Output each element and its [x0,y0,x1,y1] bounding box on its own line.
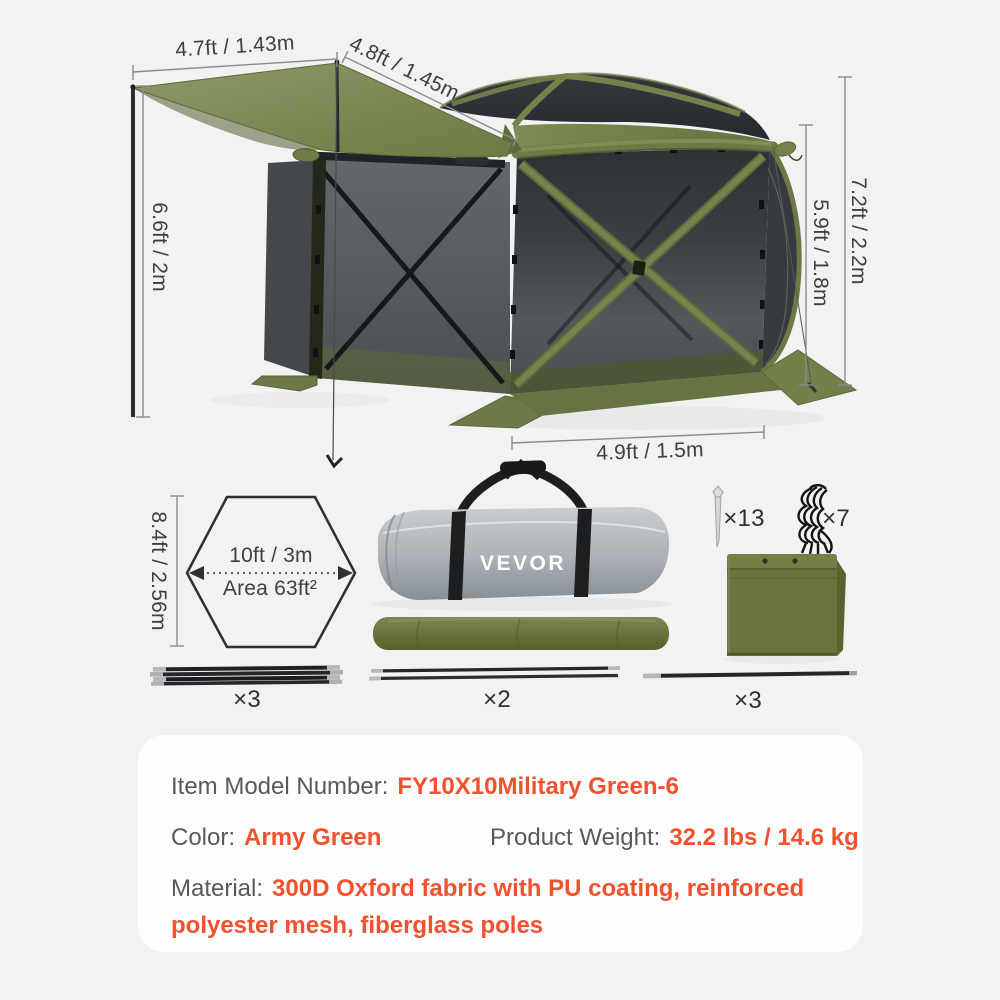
footprint-height-label: 8.4ft / 2.56m [146,511,170,630]
bag-handle-grip [500,460,546,475]
bag-handle [523,469,585,514]
material-row: Material:300D Oxford fabric with PU coat… [171,870,841,944]
brand-logo: VEVOR [480,552,566,576]
ropes-count: ×7 [822,505,850,533]
pole-single-count: ×3 [734,687,762,715]
footprint-hexagon-diagram [170,496,355,647]
material-label: Material: [171,875,263,902]
footprint-area-label: Area 63ft² [223,577,317,601]
material-value: 300D Oxford fabric with PU coating, rein… [171,875,804,939]
weight-value: 32.2 lbs / 14.6 kg [669,824,858,851]
tarp-roll-illustration [373,617,669,650]
folded-fabric-illustration [727,554,846,656]
spec-panel: Item Model Number:FY10X10Military Green-… [138,735,863,952]
color-group: Color:Army Green [171,824,381,851]
skirt-left [252,376,317,391]
pole-bundle-count: ×3 [233,686,261,714]
pole-pair-icon [369,666,620,680]
pole-bundle-icon [150,665,343,686]
stake-icon [713,486,723,547]
model-value: FY10X10Military Green-6 [397,773,678,800]
footprint-width-label: 10ft / 3m [229,544,313,568]
weight-label: Product Weight: [490,824,660,851]
pole-pair-count: ×2 [483,686,511,714]
color-label: Color: [171,824,235,851]
weight-group: Product Weight:32.2 lbs / 14.6 kg [490,823,859,853]
dim-pole-height: 6.6ft / 2m [147,202,171,292]
dim-base-width: 4.9ft / 1.5m [596,438,704,466]
color-weight-row: Color:Army Green Product Weight:32.2 lbs… [171,823,843,853]
product-spec-image: 4.7ft / 1.43m 4.8ft / 1.45m 6.6ft / 2m 5… [0,0,1000,1000]
model-row: Item Model Number:FY10X10Military Green-… [171,772,843,802]
dim-total-height: 7.2ft / 2.2m [846,177,870,284]
carry-bag-illustration [378,460,669,600]
stakes-count: ×13 [723,505,764,533]
model-label: Item Model Number: [171,773,388,800]
pole-single-icon [643,671,857,678]
color-value: Army Green [244,824,381,851]
dim-panel-height: 5.9ft / 1.8m [808,199,832,306]
